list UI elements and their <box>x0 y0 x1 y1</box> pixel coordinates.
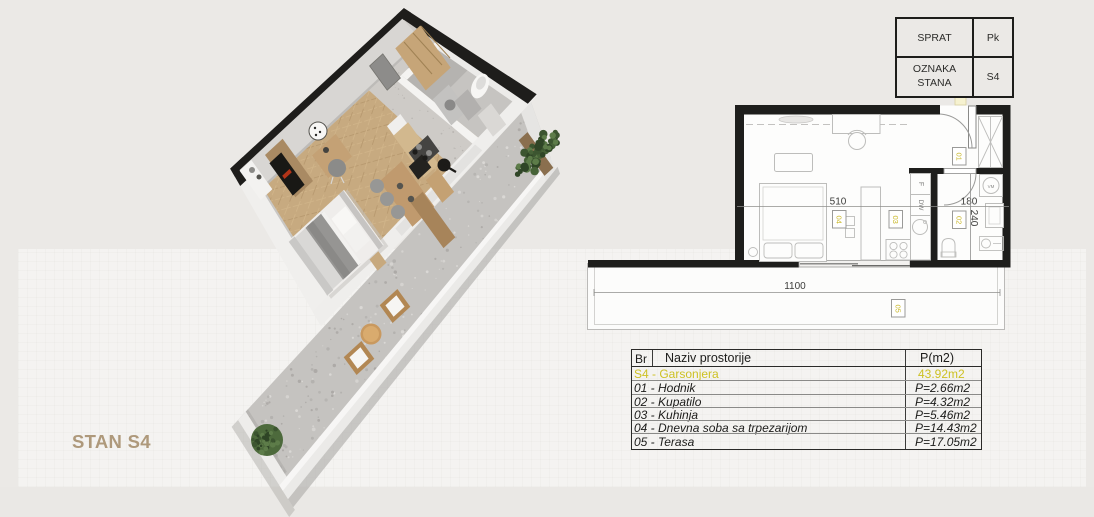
svg-text:240: 240 <box>968 210 979 227</box>
svg-text:F: F <box>917 182 924 186</box>
svg-text:01: 01 <box>954 153 963 161</box>
svg-text:510: 510 <box>830 197 847 208</box>
svg-text:180: 180 <box>961 197 978 208</box>
svg-text:1100: 1100 <box>784 281 806 292</box>
svg-text:05: 05 <box>893 305 902 313</box>
svg-text:02: 02 <box>954 216 963 224</box>
svg-text:04: 04 <box>834 216 843 224</box>
svg-text:DW: DW <box>917 200 924 212</box>
svg-text:VM: VM <box>988 184 995 189</box>
svg-text:03: 03 <box>891 216 900 224</box>
